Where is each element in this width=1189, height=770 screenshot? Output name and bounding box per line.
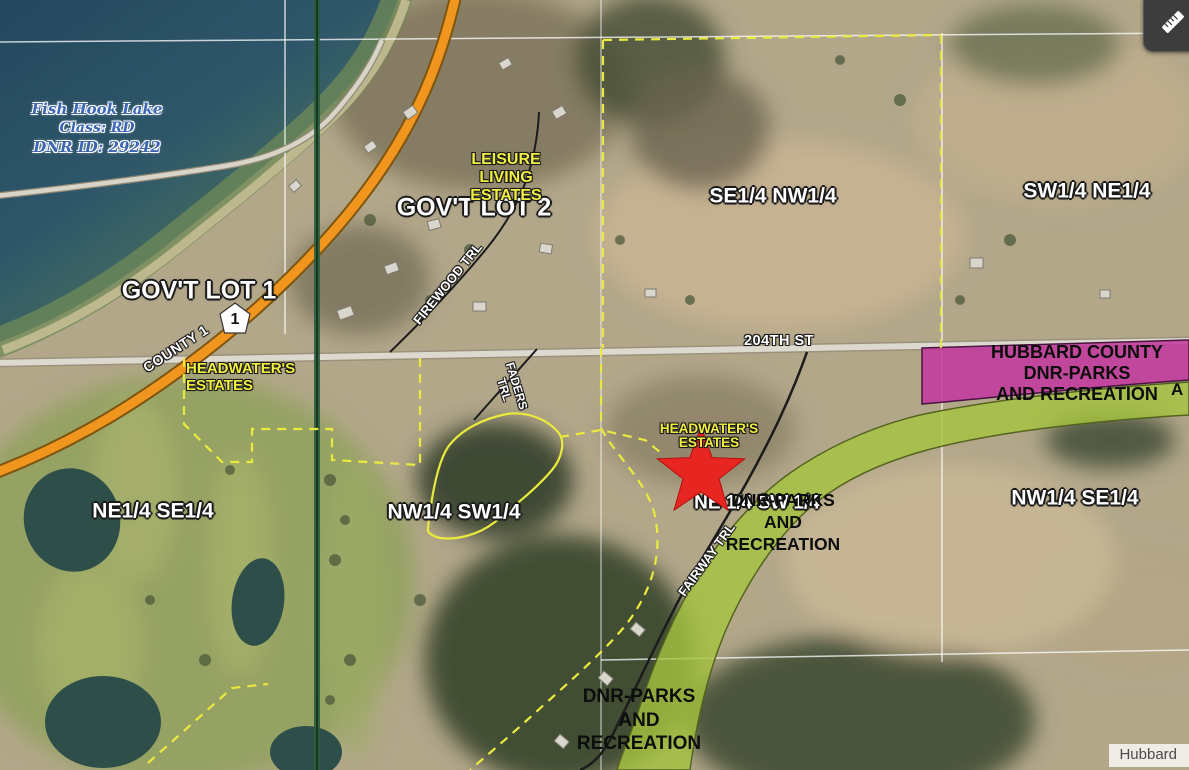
quarter-label-nw-se: NW1/4 SE1/4 bbox=[1011, 486, 1138, 509]
lake-label: Fish Hook Lake Class: RD DNR ID: 29242 bbox=[27, 100, 167, 157]
dnr-central-line2: AND bbox=[683, 511, 883, 533]
quarter-label-nw-sw: NW1/4 SW1/4 bbox=[387, 500, 520, 523]
quarter-label-se-nw: SE1/4 NW1/4 bbox=[709, 184, 836, 207]
dnr-central-line3: RECREATION bbox=[683, 533, 883, 555]
ownership-label-dnr-central: DNR-PARKS AND RECREATION bbox=[683, 489, 883, 555]
quarter-label-sw-ne: SW1/4 NE1/4 bbox=[1023, 179, 1150, 202]
hubbard-line2: DNR-PARKS bbox=[952, 363, 1189, 384]
leisure-line3: ESTATES bbox=[470, 187, 541, 205]
hubbard-line3: AND RECREATION bbox=[952, 384, 1189, 405]
road-label-204th-st: 204TH ST bbox=[744, 334, 814, 350]
dnr-central-line1: DNR-PARKS bbox=[683, 489, 883, 511]
county-route-number: 1 bbox=[218, 311, 252, 329]
subdivision-label-headwaters-estates-west: HEADWATER'S ESTATES bbox=[186, 360, 295, 394]
county-route-shield: 1 bbox=[218, 302, 252, 335]
leisure-line2: LIVING bbox=[470, 169, 541, 187]
ruler-icon bbox=[1158, 7, 1188, 37]
leisure-line1: LEISURE bbox=[470, 151, 541, 169]
lake-class: Class: RD bbox=[27, 119, 167, 138]
dnr-south-line3: RECREATION bbox=[539, 732, 739, 756]
headwaters-central-line1: HEADWATER'S bbox=[660, 422, 758, 436]
quarter-label-ne-se: NE1/4 SE1/4 bbox=[92, 499, 213, 522]
subdivision-label-leisure-living-estates: LEISURE LIVING ESTATES bbox=[470, 151, 541, 205]
measure-tool-button[interactable] bbox=[1143, 0, 1189, 52]
lake-name: Fish Hook Lake bbox=[27, 100, 167, 119]
headwaters-west-line1: HEADWATER'S bbox=[186, 360, 295, 377]
dnr-south-line1: DNR-PARKS bbox=[539, 685, 739, 709]
ownership-label-dnr-south: DNR-PARKS AND RECREATION bbox=[539, 685, 739, 756]
headwaters-west-line2: ESTATES bbox=[186, 377, 295, 394]
lake-dnr-id: DNR ID: 29242 bbox=[27, 138, 167, 157]
subdivision-label-headwaters-estates-central: HEADWATER'S ESTATES bbox=[660, 422, 758, 450]
dnr-south-line2: AND bbox=[539, 709, 739, 733]
hubbard-line1: HUBBARD COUNTY bbox=[952, 342, 1189, 363]
ownership-label-edge-partial: A bbox=[1171, 381, 1183, 400]
headwaters-central-line2: ESTATES bbox=[660, 436, 758, 450]
map-attribution: Hubbard bbox=[1109, 744, 1189, 767]
gis-map-viewport[interactable]: Fish Hook Lake Class: RD DNR ID: 29242 G… bbox=[0, 0, 1189, 770]
parcel-label-govt-lot-1: GOV'T LOT 1 bbox=[122, 277, 277, 305]
ownership-label-hubbard-county: HUBBARD COUNTY DNR-PARKS AND RECREATION bbox=[952, 342, 1189, 405]
